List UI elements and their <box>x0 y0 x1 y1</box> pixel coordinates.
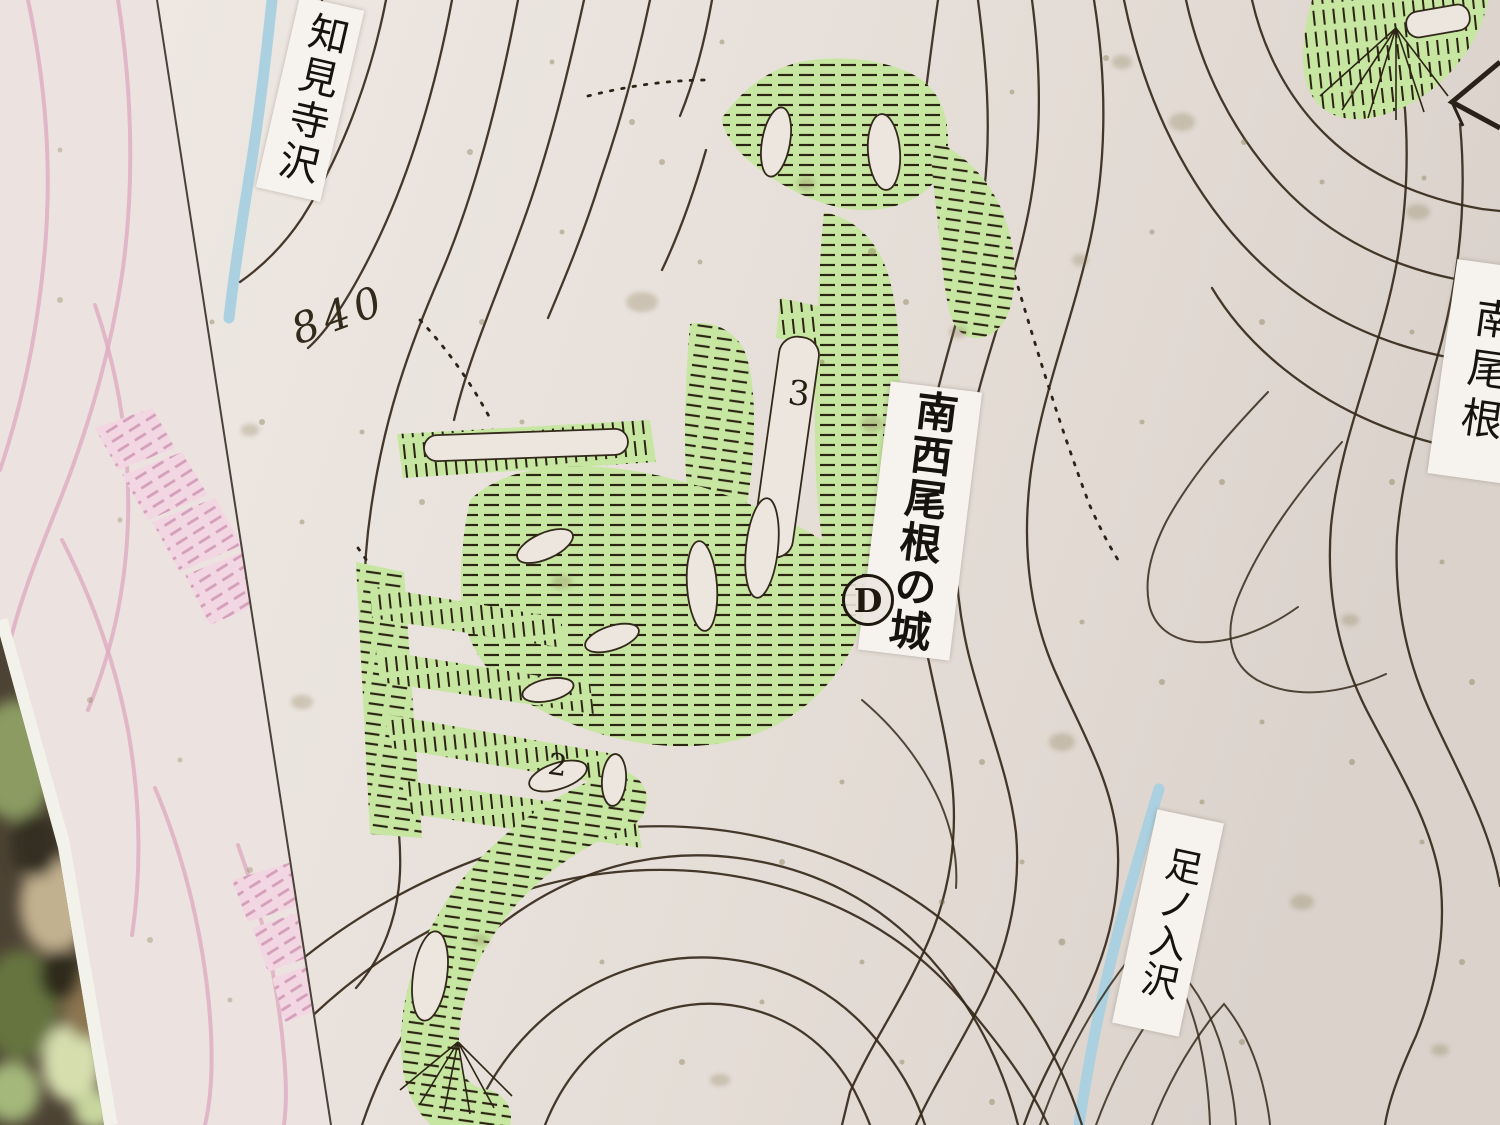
point-d-marker: D <box>842 574 894 626</box>
enclosure-number-3: 3 <box>786 373 812 415</box>
point-d-letter: D <box>854 581 883 620</box>
topographic-map-graphic <box>0 0 1500 1125</box>
map-sign-photo: 知見寺沢 南西尾根の城 南尾根 足ノ入沢 840 D 3 2 <box>0 0 1500 1125</box>
